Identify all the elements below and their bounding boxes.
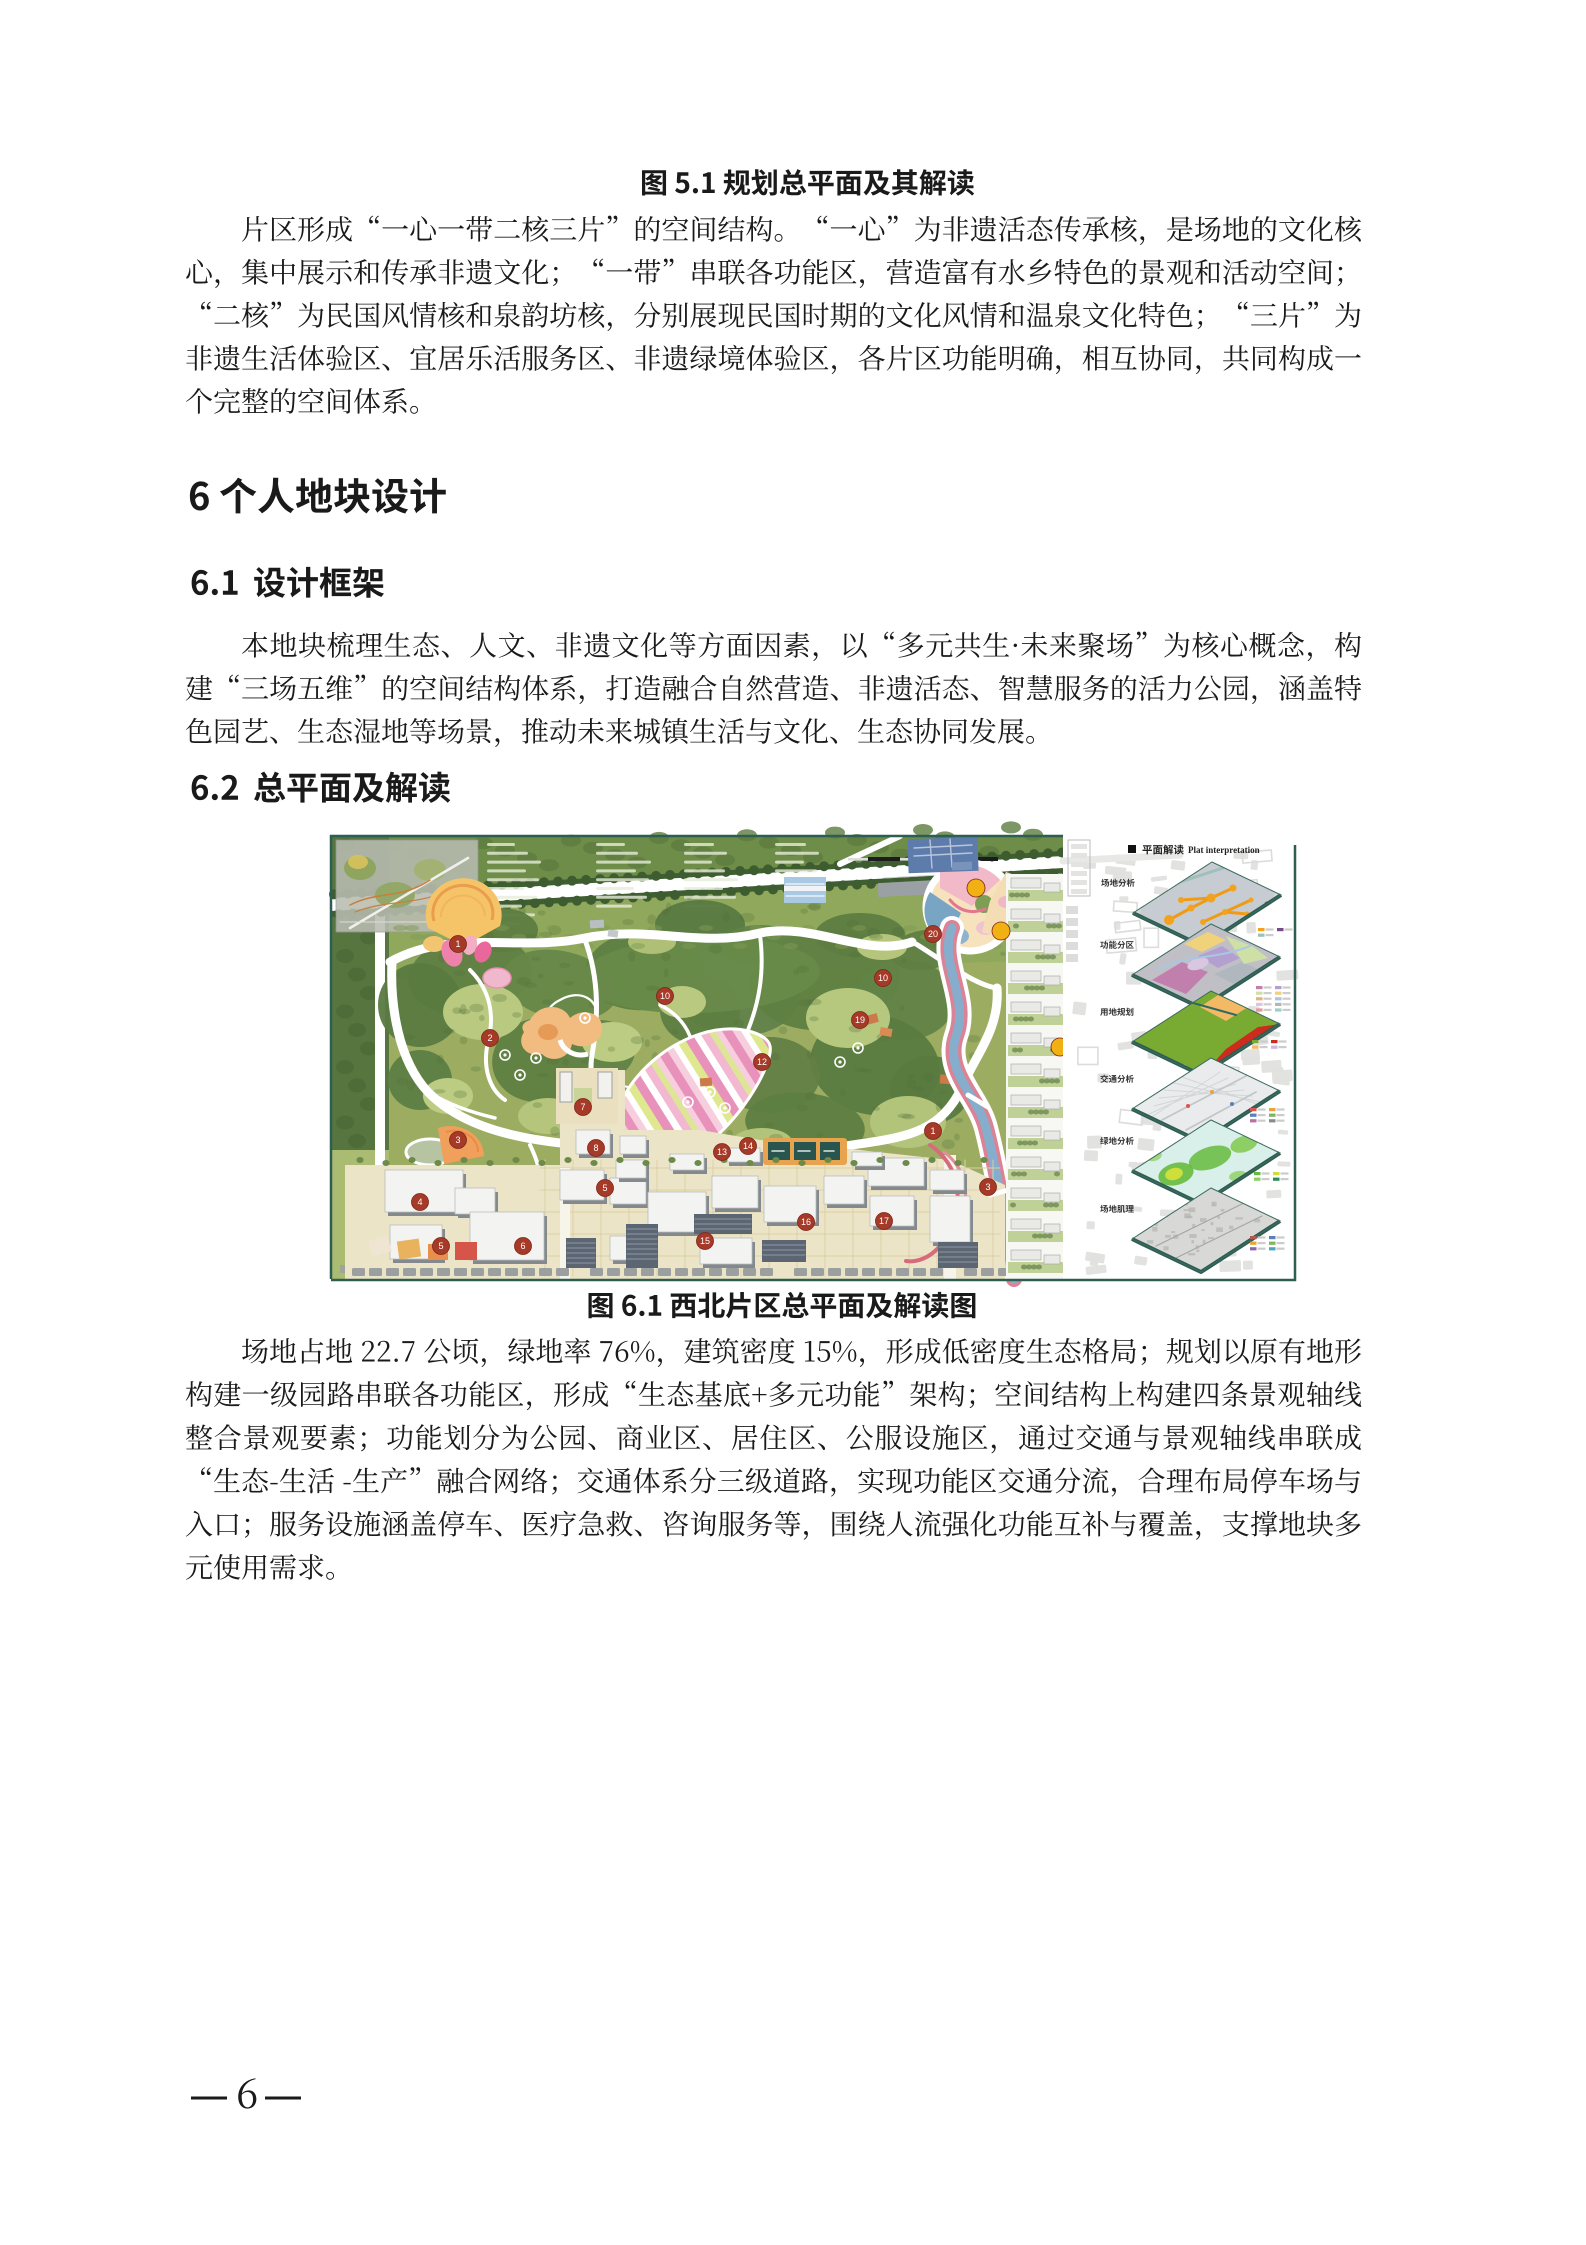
svg-text:5: 5: [438, 1241, 443, 1251]
svg-text:Plat interpretation: Plat interpretation: [1188, 845, 1260, 855]
svg-text:15: 15: [700, 1236, 710, 1246]
svg-text:13: 13: [717, 1147, 727, 1157]
svg-text:7: 7: [580, 1102, 585, 1112]
svg-text:12: 12: [757, 1057, 767, 1067]
svg-text:10: 10: [878, 973, 888, 983]
svg-text:10: 10: [660, 991, 670, 1001]
svg-text:3: 3: [985, 1182, 990, 1192]
svg-text:6: 6: [520, 1241, 525, 1251]
svg-text:2: 2: [487, 1033, 492, 1043]
svg-text:4: 4: [417, 1197, 422, 1207]
svg-text:5: 5: [602, 1183, 607, 1193]
svg-text:16: 16: [801, 1217, 811, 1227]
svg-text:14: 14: [743, 1141, 753, 1151]
svg-text:19: 19: [855, 1015, 865, 1025]
svg-text:1: 1: [930, 1126, 935, 1136]
svg-text:3: 3: [455, 1135, 460, 1145]
svg-text:1: 1: [455, 939, 460, 949]
svg-text:17: 17: [879, 1216, 889, 1226]
svg-text:20: 20: [928, 929, 938, 939]
svg-text:8: 8: [593, 1143, 598, 1153]
